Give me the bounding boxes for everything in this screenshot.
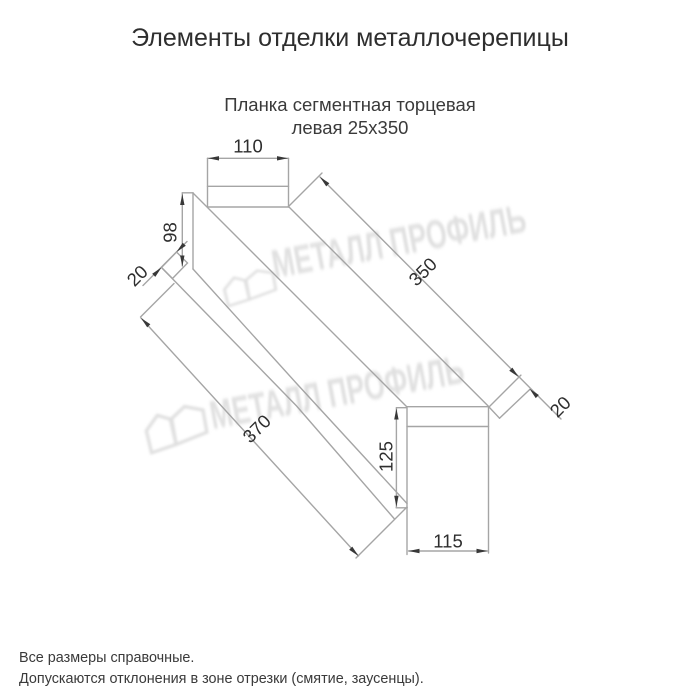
svg-text:350: 350 <box>404 253 441 290</box>
svg-text:98: 98 <box>160 222 181 243</box>
svg-text:20: 20 <box>545 392 574 421</box>
svg-text:125: 125 <box>376 441 397 472</box>
svg-text:110: 110 <box>233 136 263 157</box>
svg-text:370: 370 <box>238 410 275 447</box>
svg-text:115: 115 <box>433 531 463 552</box>
svg-text:20: 20 <box>122 261 151 290</box>
